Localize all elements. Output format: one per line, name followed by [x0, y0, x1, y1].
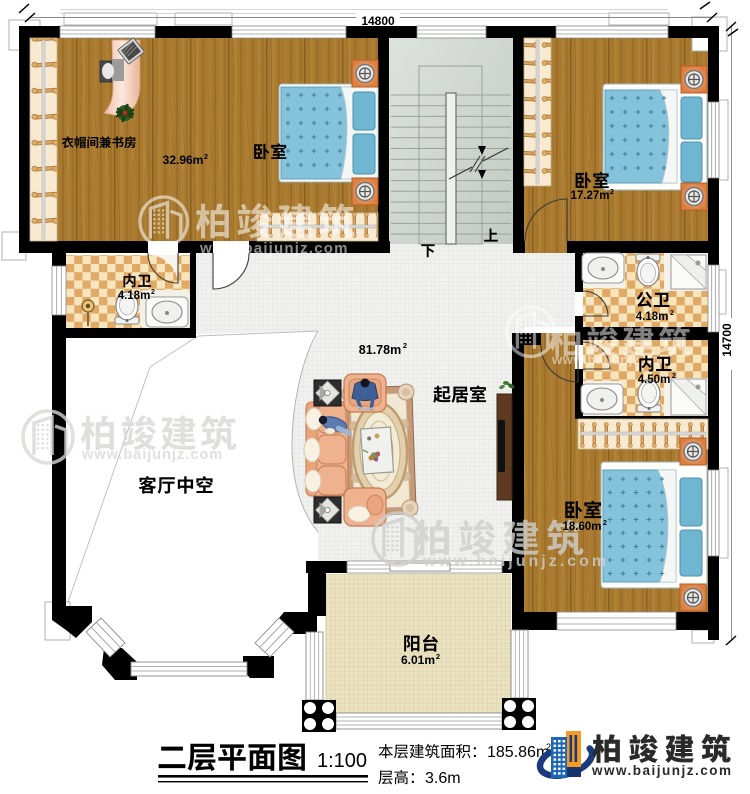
- svg-text:4.50m: 4.50m: [638, 374, 671, 386]
- svg-text:www.baijunjz.com: www.baijunjz.com: [551, 352, 672, 367]
- svg-text:www.baijunjz.com: www.baijunjz.com: [591, 763, 733, 778]
- svg-text:2: 2: [403, 341, 407, 350]
- svg-text:4.18m: 4.18m: [118, 290, 151, 302]
- svg-text:www.baijunjz.com: www.baijunjz.com: [422, 553, 609, 570]
- svg-text:4.18m: 4.18m: [636, 311, 669, 323]
- svg-text:2: 2: [204, 152, 208, 161]
- svg-text:1:100: 1:100: [317, 750, 367, 772]
- svg-text:2: 2: [436, 652, 440, 661]
- svg-text:32.96m: 32.96m: [163, 153, 204, 167]
- svg-text:2: 2: [670, 310, 674, 317]
- svg-text:18.60m: 18.60m: [562, 521, 601, 533]
- svg-text:3.6m: 3.6m: [425, 770, 461, 787]
- svg-text:6.01m: 6.01m: [401, 653, 435, 667]
- svg-text:17.27m: 17.27m: [570, 190, 609, 202]
- svg-text:2: 2: [603, 520, 607, 527]
- svg-text:www.baijunjz.com: www.baijunjz.com: [199, 240, 349, 257]
- svg-text:81.78m: 81.78m: [359, 343, 401, 357]
- svg-text:14800: 14800: [361, 14, 395, 28]
- svg-text:2: 2: [151, 289, 155, 296]
- svg-text:2: 2: [610, 189, 614, 196]
- svg-text:2: 2: [672, 373, 676, 380]
- svg-text:www.baijunjz.com: www.baijunjz.com: [81, 447, 223, 463]
- svg-text:14700: 14700: [720, 323, 734, 357]
